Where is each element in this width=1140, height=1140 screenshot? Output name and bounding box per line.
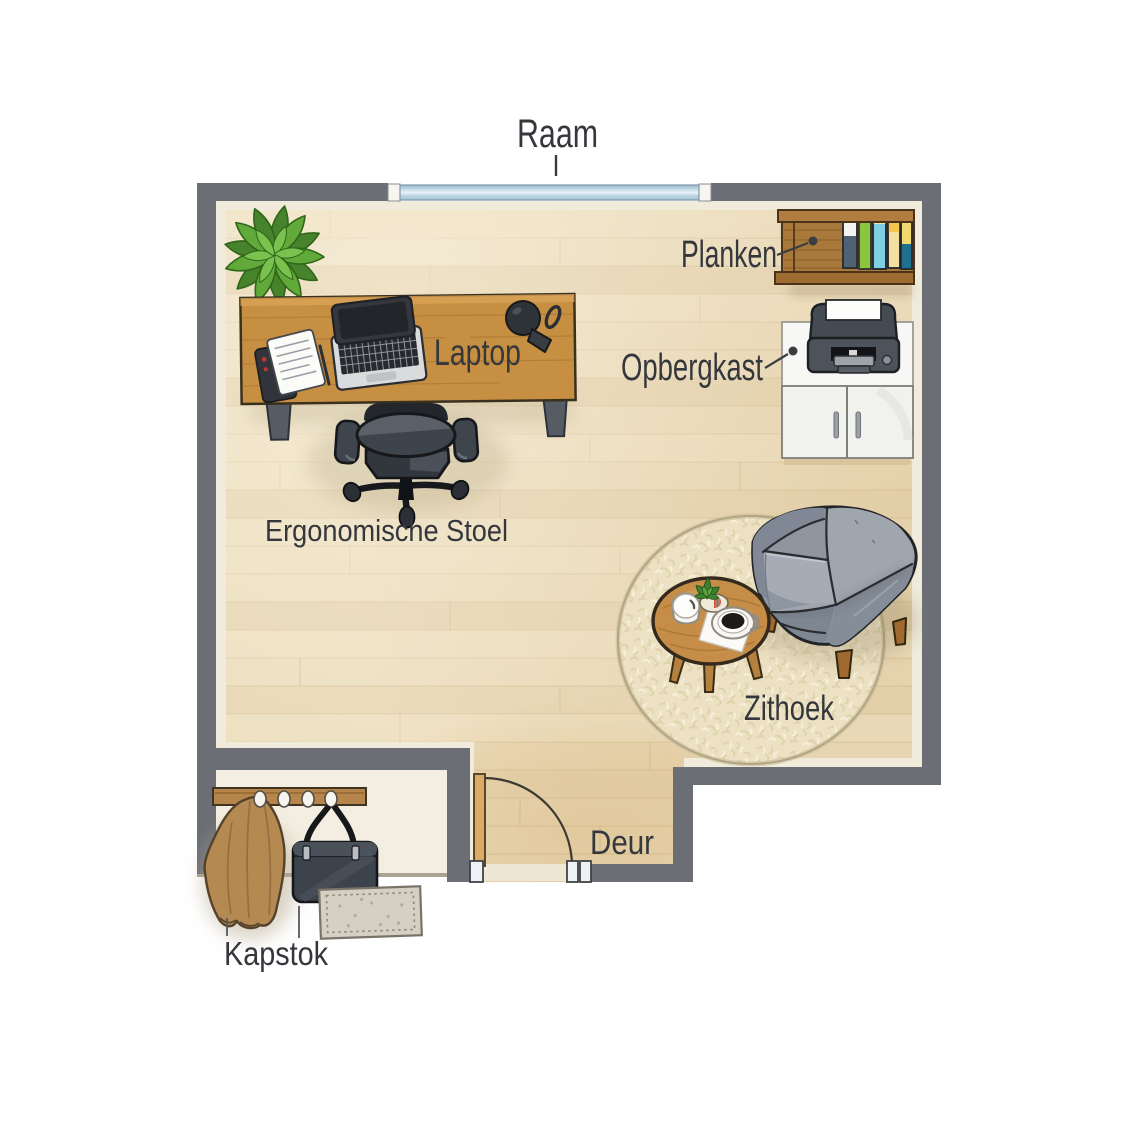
svg-text:Zithoek: Zithoek [744,689,834,728]
svg-text:Deur: Deur [590,824,654,862]
svg-text:Opbergkast: Opbergkast [621,347,763,389]
svg-text:Planken: Planken [681,234,777,276]
svg-text:Laptop: Laptop [434,332,521,373]
svg-text:Ergonomische Stoel: Ergonomische Stoel [265,513,508,548]
svg-text:Raam: Raam [517,112,598,156]
svg-text:Kapstok: Kapstok [224,935,328,972]
